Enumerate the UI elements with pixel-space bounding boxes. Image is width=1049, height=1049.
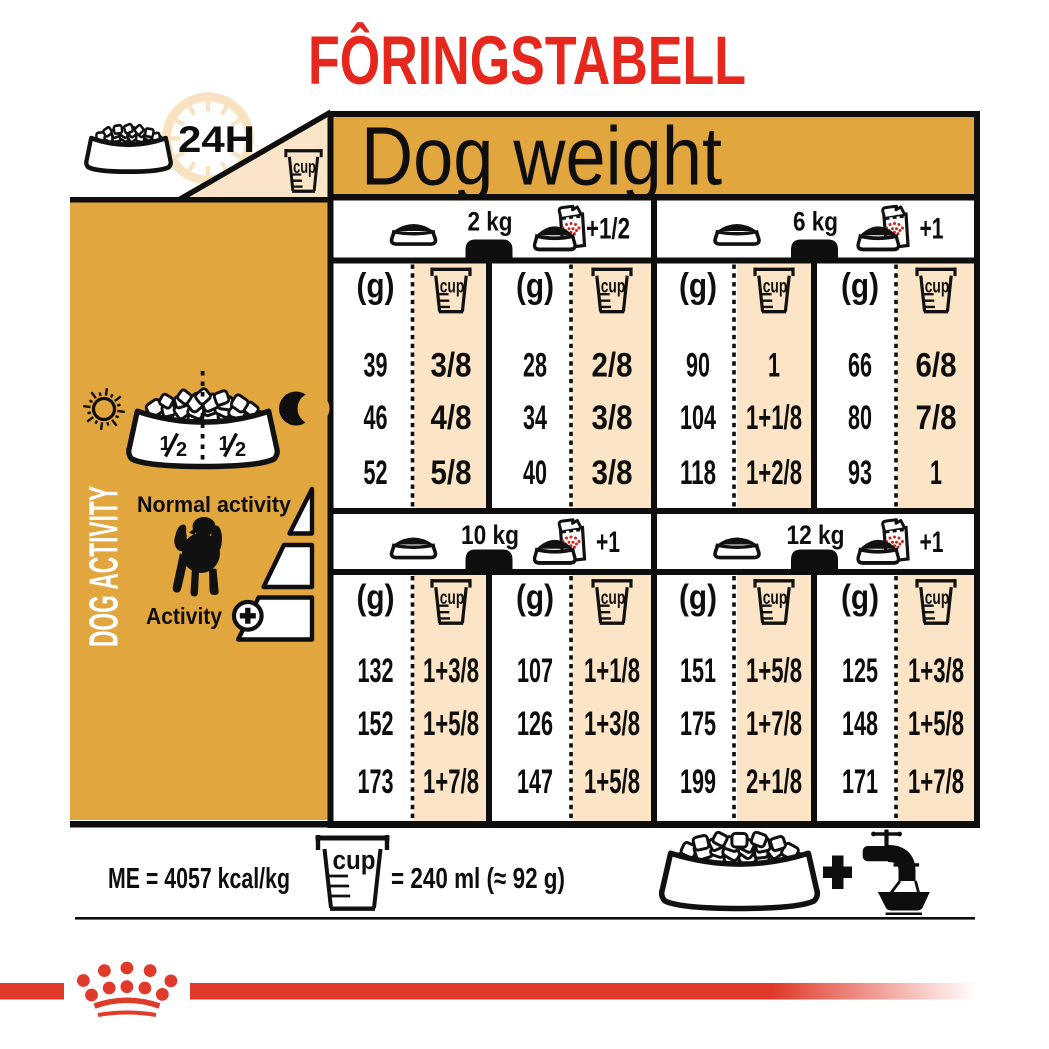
svg-text:(g): (g): [841, 267, 879, 306]
svg-text:12 kg: 12 kg: [787, 520, 845, 550]
svg-text:7/8: 7/8: [916, 399, 957, 437]
svg-text:173: 173: [358, 763, 394, 801]
svg-text:4/8: 4/8: [431, 399, 472, 437]
svg-text:93: 93: [848, 454, 872, 492]
svg-text:40: 40: [523, 454, 547, 492]
svg-text:1: 1: [930, 454, 942, 492]
svg-text:(g): (g): [841, 578, 879, 617]
svg-text:175: 175: [680, 705, 716, 743]
svg-text:+1/2: +1/2: [586, 213, 630, 246]
svg-text:46: 46: [364, 399, 388, 437]
svg-text:FÔRINGSTABELL: FÔRINGSTABELL: [308, 22, 746, 99]
svg-text:1+7/8: 1+7/8: [423, 763, 479, 801]
svg-text:52: 52: [364, 454, 388, 492]
svg-text:1+1/8: 1+1/8: [746, 399, 802, 437]
svg-text:28: 28: [523, 347, 547, 385]
svg-text:+1: +1: [920, 526, 944, 559]
svg-text:ME = 4057 kcal/kg: ME = 4057 kcal/kg: [108, 863, 290, 895]
svg-text:1+2/8: 1+2/8: [746, 454, 802, 492]
svg-text:cup: cup: [333, 845, 376, 875]
svg-text:1+5/8: 1+5/8: [423, 705, 479, 743]
svg-text:1+5/8: 1+5/8: [746, 652, 802, 690]
svg-text:2: 2: [235, 439, 246, 461]
svg-text:+1: +1: [596, 526, 620, 559]
svg-text:+1: +1: [920, 213, 944, 246]
svg-text:1+3/8: 1+3/8: [423, 652, 479, 690]
svg-text:199: 199: [680, 763, 716, 801]
svg-text:(g): (g): [516, 267, 554, 306]
svg-text:39: 39: [364, 347, 388, 385]
svg-text:24H: 24H: [178, 119, 255, 160]
svg-text:2/8: 2/8: [592, 347, 633, 385]
svg-text:1: 1: [768, 347, 780, 385]
svg-text:126: 126: [517, 705, 553, 743]
svg-text:66: 66: [848, 347, 872, 385]
svg-text:90: 90: [686, 347, 710, 385]
svg-text:3/8: 3/8: [431, 347, 472, 385]
svg-text:(g): (g): [679, 267, 717, 306]
svg-text:118: 118: [680, 454, 716, 492]
svg-text:148: 148: [842, 705, 878, 743]
svg-text:2 kg: 2 kg: [468, 207, 513, 237]
svg-text:DOG ACTIVITY: DOG ACTIVITY: [81, 486, 127, 647]
svg-text:2: 2: [176, 439, 187, 461]
svg-text:152: 152: [358, 705, 394, 743]
svg-text:(g): (g): [516, 578, 554, 617]
svg-text:= 240 ml (≈ 92 g): = 240 ml (≈ 92 g): [391, 863, 565, 895]
svg-text:1+3/8: 1+3/8: [908, 652, 964, 690]
svg-text:(g): (g): [357, 267, 395, 306]
svg-text:2+1/8: 2+1/8: [746, 763, 802, 801]
svg-text:1+5/8: 1+5/8: [584, 763, 640, 801]
svg-text:3/8: 3/8: [592, 399, 633, 437]
svg-text:1+1/8: 1+1/8: [584, 652, 640, 690]
svg-text:6 kg: 6 kg: [793, 207, 838, 237]
svg-text:5/8: 5/8: [431, 454, 472, 492]
svg-text:3/8: 3/8: [592, 454, 633, 492]
svg-text:1+5/8: 1+5/8: [908, 705, 964, 743]
svg-text:132: 132: [358, 652, 394, 690]
svg-text:104: 104: [680, 399, 716, 437]
svg-text:10 kg: 10 kg: [461, 520, 519, 550]
svg-text:34: 34: [523, 399, 547, 437]
svg-text:Normal activity: Normal activity: [137, 492, 292, 517]
svg-text:Dog weight: Dog weight: [361, 110, 722, 203]
svg-text:1+3/8: 1+3/8: [584, 705, 640, 743]
svg-text:(g): (g): [679, 578, 717, 617]
svg-text:1+7/8: 1+7/8: [908, 763, 964, 801]
svg-text:107: 107: [517, 652, 553, 690]
svg-text:Activity: Activity: [146, 603, 222, 629]
svg-text:(g): (g): [357, 578, 395, 617]
svg-text:125: 125: [842, 652, 878, 690]
svg-text:147: 147: [517, 763, 553, 801]
svg-text:80: 80: [848, 399, 872, 437]
svg-text:171: 171: [842, 763, 878, 801]
svg-text:151: 151: [680, 652, 716, 690]
svg-text:6/8: 6/8: [916, 347, 957, 385]
svg-text:1+7/8: 1+7/8: [746, 705, 802, 743]
